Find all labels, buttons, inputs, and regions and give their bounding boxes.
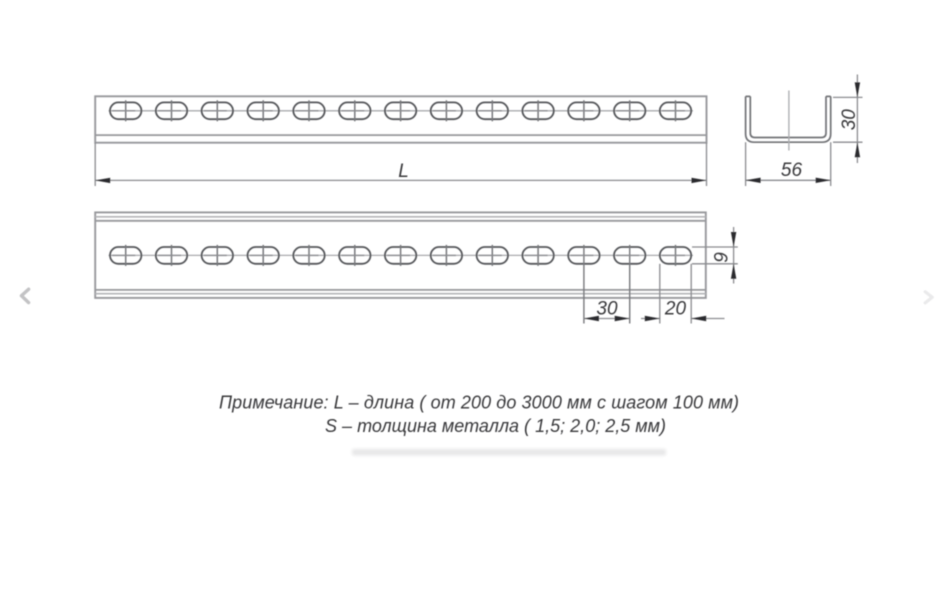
- svg-text:Примечание: L – длина ( от 200: Примечание: L – длина ( от 200 до 3000 м…: [219, 393, 739, 413]
- svg-text:56: 56: [781, 160, 803, 181]
- svg-text:30: 30: [839, 109, 860, 131]
- svg-text:20: 20: [664, 299, 687, 320]
- svg-text:S – толщина металла ( 1,5; 2,0: S – толщина металла ( 1,5; 2,0; 2,5 мм): [325, 416, 666, 436]
- svg-text:L: L: [398, 161, 409, 182]
- svg-text:9: 9: [712, 252, 733, 263]
- svg-text:30: 30: [596, 299, 618, 320]
